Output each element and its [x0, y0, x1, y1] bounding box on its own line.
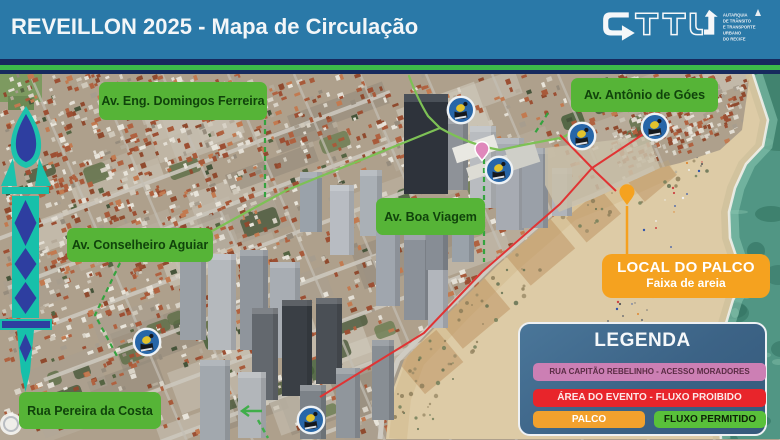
svg-text:URBANO: URBANO [723, 31, 742, 36]
svg-text:AUTARQUIA: AUTARQUIA [723, 13, 748, 18]
svg-text:E TRANSPORTE: E TRANSPORTE [723, 25, 756, 30]
svg-text:DE TRÂNSITO: DE TRÂNSITO [723, 19, 752, 24]
svg-text:DO RECIFE: DO RECIFE [723, 37, 746, 42]
